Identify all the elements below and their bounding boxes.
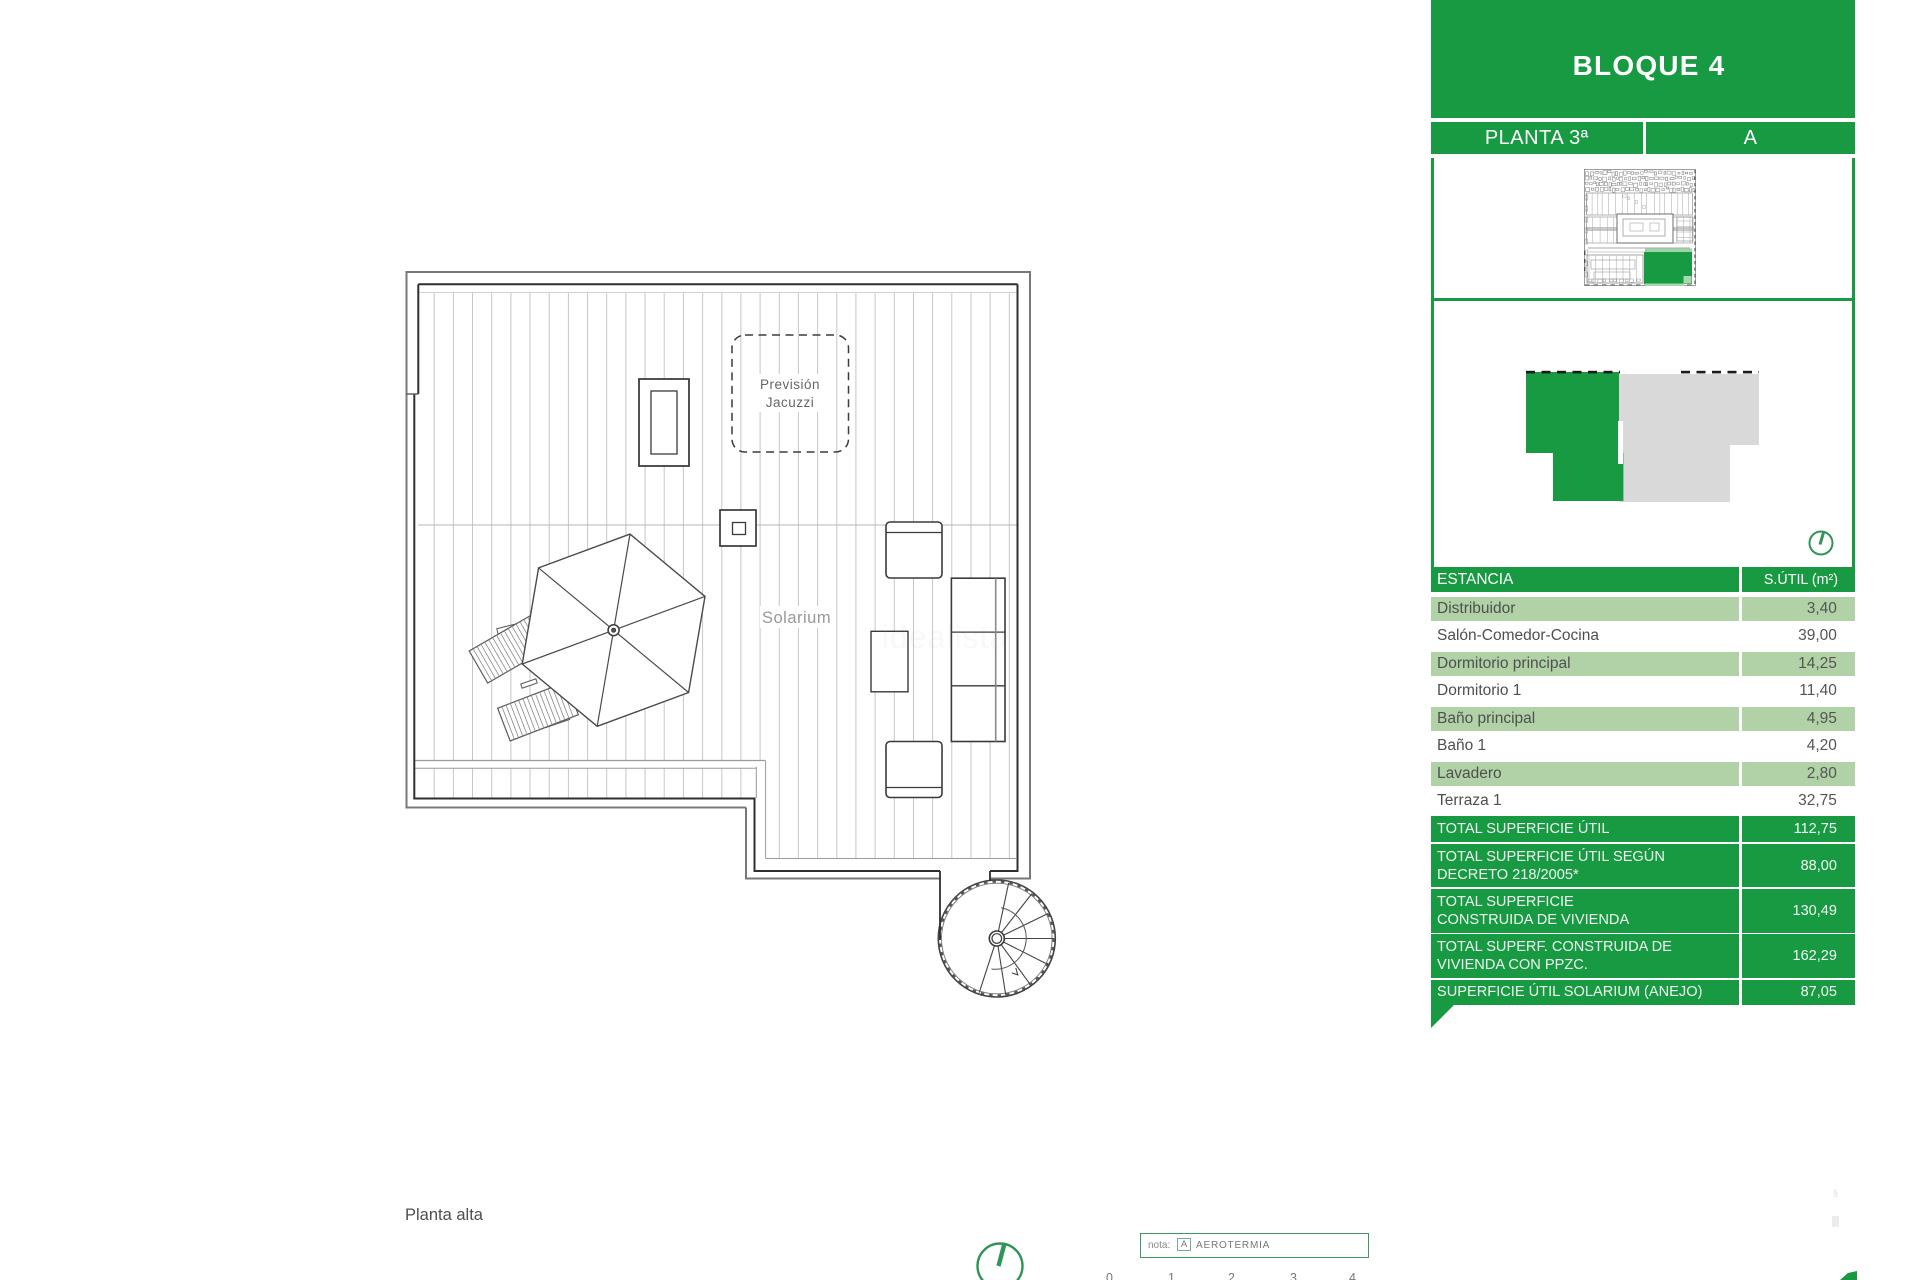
svg-text:idealista: idealista bbox=[882, 619, 1008, 655]
svg-text:§: § bbox=[1833, 1188, 1838, 1198]
svg-text:Previsión: Previsión bbox=[760, 377, 820, 392]
svg-text:Solarium: Solarium bbox=[762, 609, 831, 627]
svg-text:Jacuzzi: Jacuzzi bbox=[766, 395, 815, 410]
